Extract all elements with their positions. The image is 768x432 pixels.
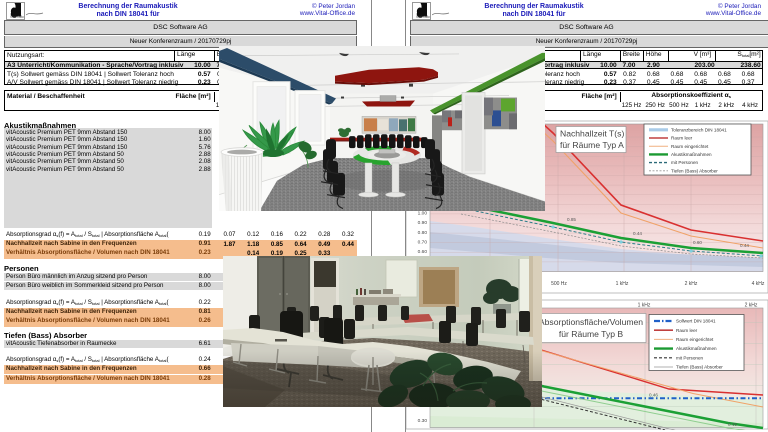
- svg-text:500 Hz: 500 Hz: [551, 281, 567, 287]
- svg-text:Sollwert DIN 18041: Sollwert DIN 18041: [676, 319, 716, 324]
- svg-text:mit Personen: mit Personen: [676, 355, 704, 360]
- svg-text:0.46: 0.46: [649, 393, 658, 398]
- svg-text:Raum eingerichtet: Raum eingerichtet: [671, 144, 709, 149]
- svg-text:0.60: 0.60: [418, 249, 428, 255]
- svg-text:Absorptionsfläche/Volumen: Absorptionsfläche/Volumen: [539, 317, 643, 327]
- svg-text:Toleranzbereich DIN 18041: Toleranzbereich DIN 18041: [671, 127, 727, 132]
- svg-text:Raum eingerichtet: Raum eingerichtet: [676, 337, 714, 342]
- svg-text:Raum leer: Raum leer: [671, 136, 693, 141]
- svg-text:mit Personen: mit Personen: [671, 160, 699, 165]
- svg-text:0.30: 0.30: [418, 418, 428, 424]
- svg-text:4 kHz: 4 kHz: [752, 281, 765, 287]
- svg-text:1.00: 1.00: [418, 211, 428, 217]
- svg-text:Vital-Office®: Vital-Office®: [10, 14, 24, 18]
- svg-text:Tiefen (Bass) Absorber: Tiefen (Bass) Absorber: [676, 365, 723, 370]
- svg-text:Vital-Office®: Vital-Office®: [416, 14, 430, 18]
- svg-text:für Räume Typ B: für Räume Typ B: [559, 329, 624, 339]
- svg-text:für Räume Typ A: für Räume Typ A: [560, 140, 624, 150]
- svg-text:0.90: 0.90: [418, 220, 428, 226]
- svg-text:2 kHz: 2 kHz: [745, 303, 758, 309]
- svg-text:Akustikmaßnahmen: Akustikmaßnahmen: [676, 346, 717, 351]
- svg-text:Nachhallzeit T(s): Nachhallzeit T(s): [560, 129, 624, 139]
- svg-text:0.85: 0.85: [567, 217, 576, 222]
- svg-text:1 kHz: 1 kHz: [638, 303, 651, 309]
- svg-text:0.19: 0.19: [728, 422, 737, 427]
- svg-text:2 kHz: 2 kHz: [685, 281, 698, 287]
- svg-text:Tiefen (Bass) Absorber: Tiefen (Bass) Absorber: [671, 168, 718, 173]
- svg-text:0.44: 0.44: [633, 231, 642, 236]
- svg-text:0.44: 0.44: [740, 243, 749, 248]
- svg-text:1 kHz: 1 kHz: [616, 281, 629, 287]
- svg-text:0.70: 0.70: [418, 239, 428, 245]
- svg-text:0.80: 0.80: [418, 230, 428, 236]
- svg-text:Akustikmaßnahmen: Akustikmaßnahmen: [671, 152, 712, 157]
- svg-text:Raum leer: Raum leer: [676, 328, 698, 333]
- svg-text:0.60: 0.60: [693, 240, 702, 245]
